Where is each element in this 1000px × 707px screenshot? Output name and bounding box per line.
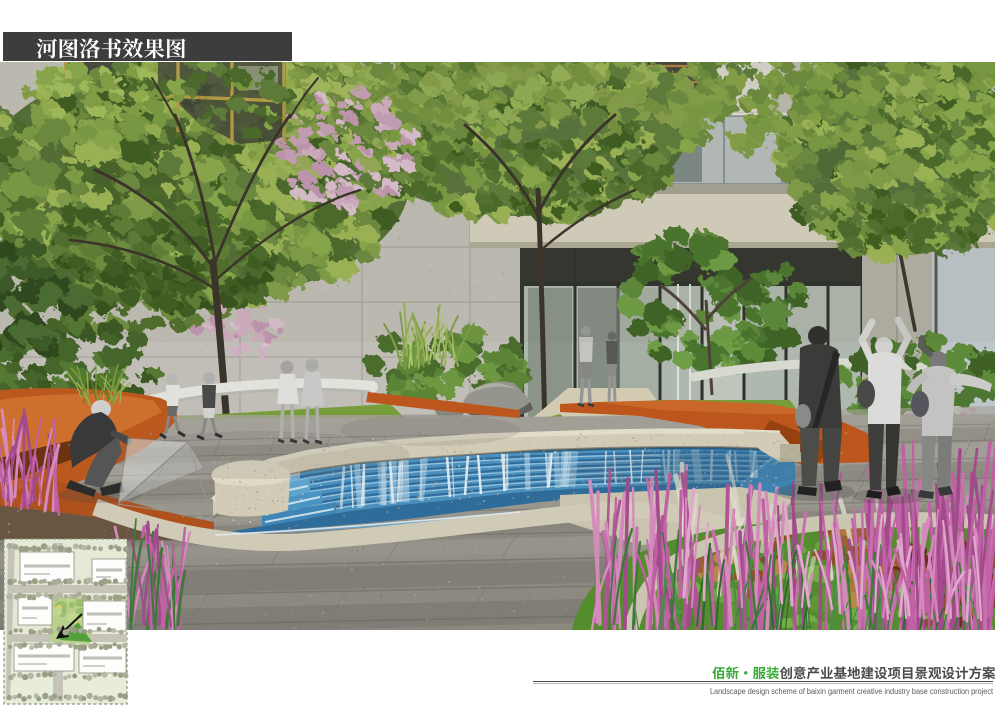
svg-text:Landscape design scheme of bai: Landscape design scheme of baixin garmen… <box>710 686 994 696</box>
